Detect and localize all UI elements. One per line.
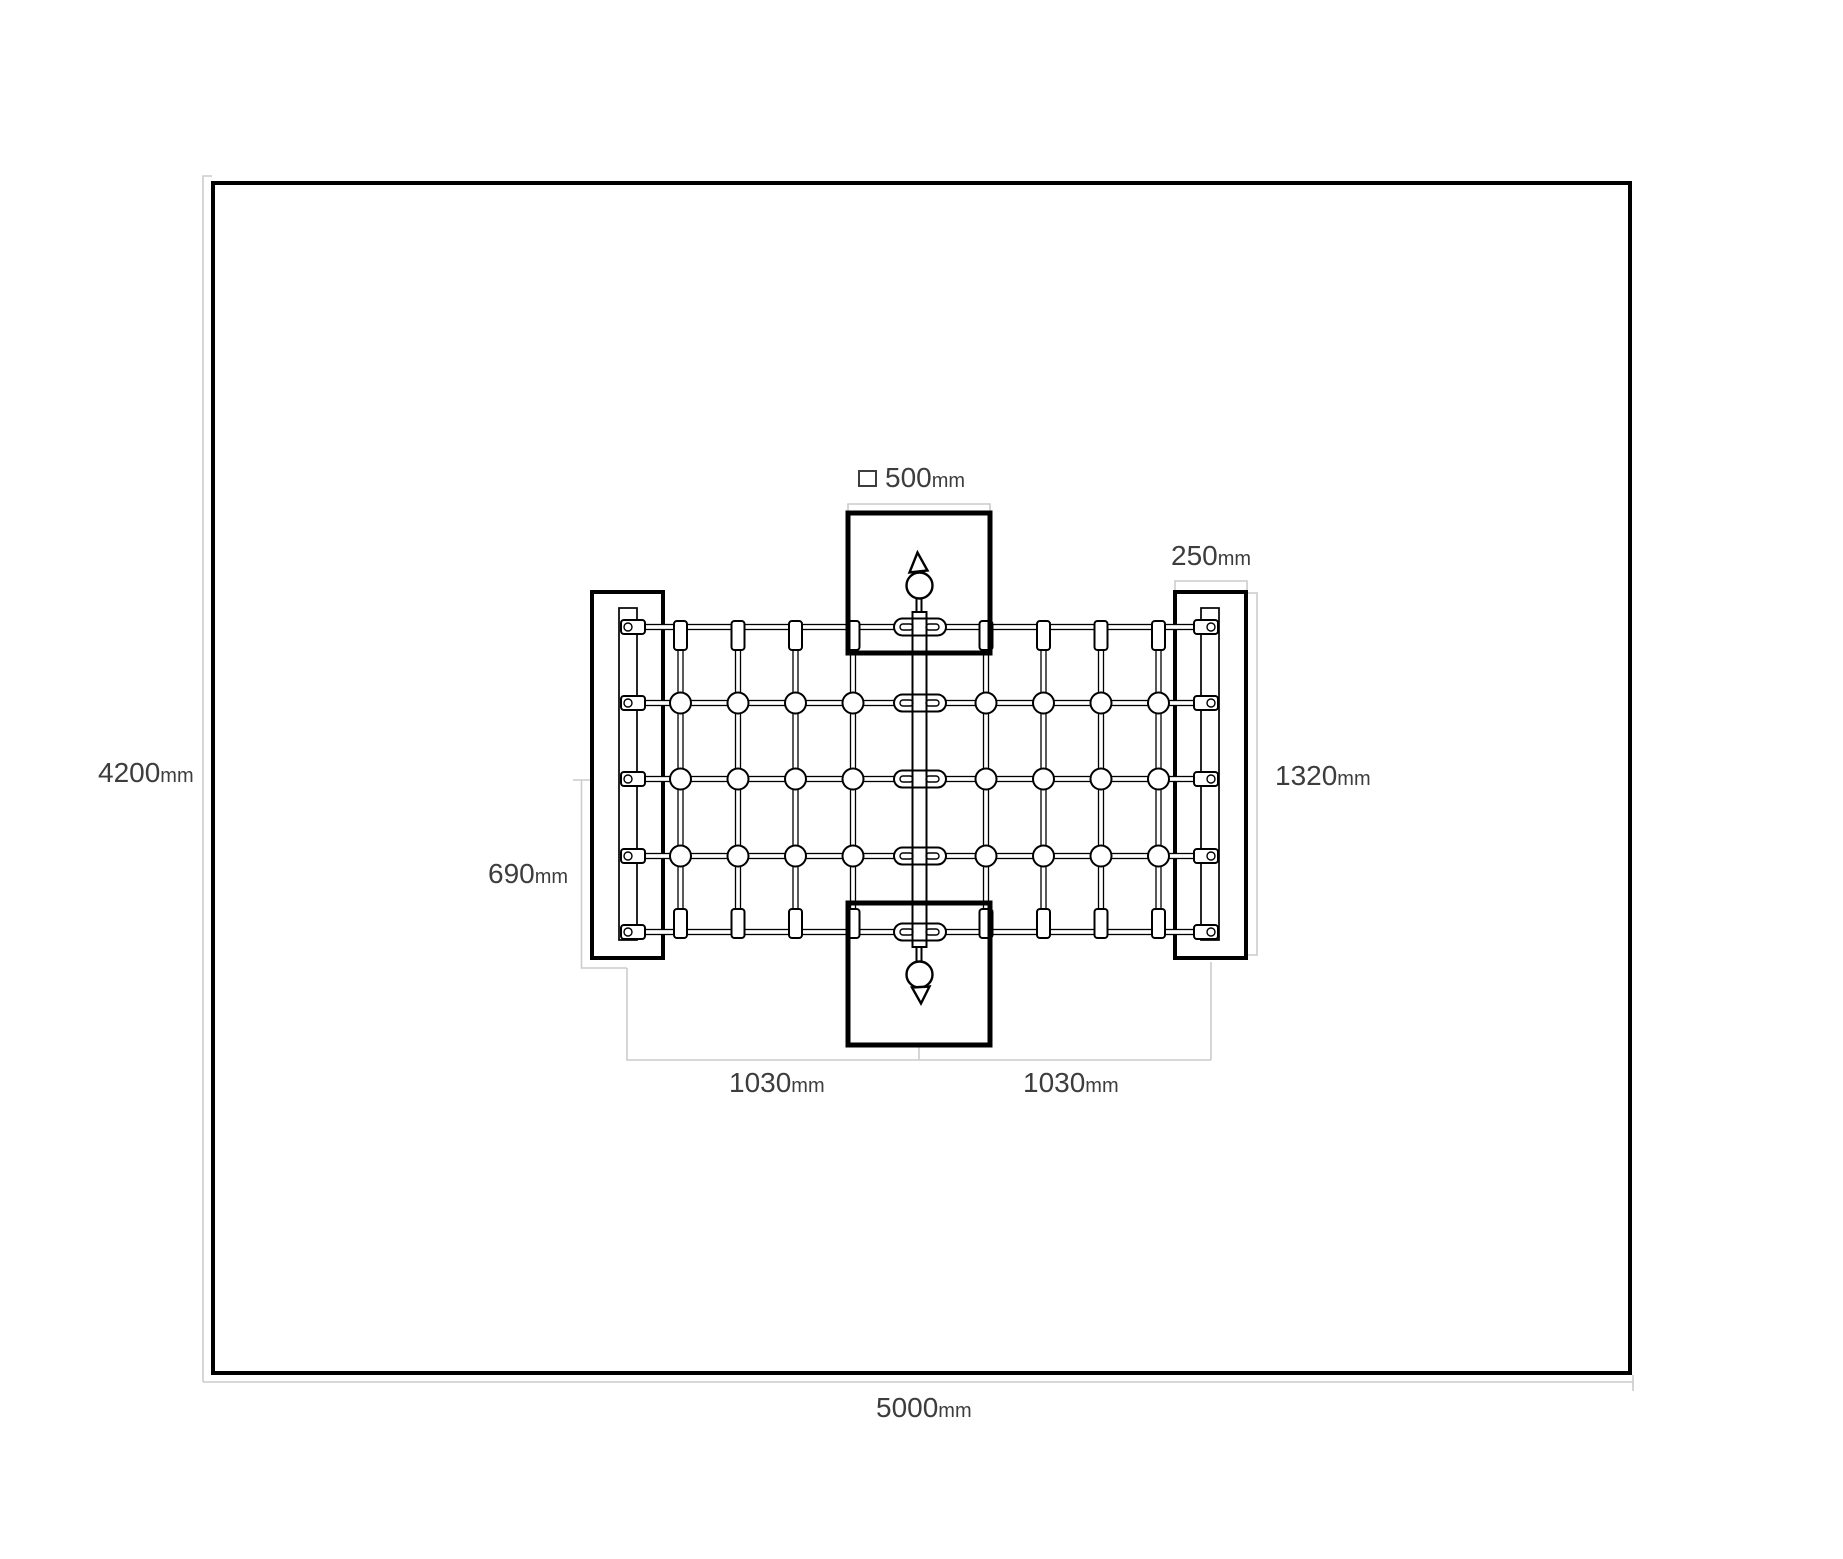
post-length-unit: mm [1337, 768, 1370, 790]
post-width-value: 250 [1171, 540, 1218, 571]
post-width-label: 250mm [1171, 542, 1251, 570]
rope-clamp-top [1152, 621, 1165, 650]
top-marker [907, 553, 933, 614]
rope-clamp-top [789, 621, 802, 650]
top-post-section-unit: mm [932, 470, 965, 492]
area-width-label: 5000mm [876, 1394, 972, 1422]
rope-cross-ball-connector [843, 769, 864, 790]
rope-cross-ball-connector [728, 769, 749, 790]
bottom-marker-stem [917, 946, 922, 962]
plan-drawing [0, 0, 1843, 1559]
right-rope-end-eye-icon [1207, 699, 1215, 707]
rope-clamp-top [732, 621, 745, 650]
left-rope-end-eye-icon [624, 928, 632, 936]
beam-turnbuckle-connector [894, 695, 946, 712]
bottom-marker-ball [907, 962, 933, 988]
bottom-marker [907, 946, 933, 1004]
half-span-right-unit: mm [1085, 1075, 1118, 1097]
rope-cross-ball-connector [1148, 693, 1169, 714]
area-width-value: 5000 [876, 1392, 938, 1423]
half-span-right-value: 1030 [1023, 1067, 1085, 1098]
top-marker-ball [907, 573, 933, 599]
net-offset-value: 690 [488, 858, 535, 889]
post-length-value: 1320 [1275, 760, 1337, 791]
rope-clamp-bottom [732, 909, 745, 938]
rope-cross-ball-connector [1033, 846, 1054, 867]
area-depth-value: 4200 [98, 757, 160, 788]
rope-cross-ball-connector [1148, 846, 1169, 867]
rope-cross-ball-connector [1091, 769, 1112, 790]
right-rope-end-eye-icon [1207, 623, 1215, 631]
left-rope-end-eye-icon [624, 623, 632, 631]
beam-turnbuckle-connector [894, 771, 946, 788]
rope-cross-ball-connector [728, 693, 749, 714]
rope-clamp-bottom [789, 909, 802, 938]
top-post-section-value: 500 [885, 462, 932, 493]
rope-clamp-bottom [1152, 909, 1165, 938]
rope-cross-ball-connector [1091, 846, 1112, 867]
bottom-marker-cone [912, 987, 930, 1004]
net-offset-label: 690mm [488, 860, 568, 888]
half-span-left-unit: mm [791, 1075, 824, 1097]
rope-cross-ball-connector [1033, 769, 1054, 790]
rope-clamp-bottom [674, 909, 687, 938]
rope-cross-ball-connector [785, 769, 806, 790]
drawing-page: 4200mm 5000mm 500mm 250mm 1320mm 690mm 1… [0, 0, 1843, 1559]
rope-clamp-bottom [1037, 909, 1050, 938]
area-depth-label: 4200mm [98, 759, 194, 787]
rope-cross-ball-connector [785, 693, 806, 714]
rope-clamp-top [1095, 621, 1108, 650]
half-span-left-value: 1030 [729, 1067, 791, 1098]
top-marker-stem [917, 598, 922, 613]
beam-turnbuckle-connector [894, 848, 946, 865]
rope-cross-ball-connector [976, 846, 997, 867]
rope-cross-ball-connector [728, 846, 749, 867]
rope-cross-ball-connector [1091, 693, 1112, 714]
rope-cross-ball-connector [843, 846, 864, 867]
right-rope-end-eye-icon [1207, 928, 1215, 936]
rope-clamp-bottom [1095, 909, 1108, 938]
right-rope-end-eye-icon [1207, 775, 1215, 783]
rope-cross-ball-connector [785, 846, 806, 867]
area-depth-unit: mm [160, 765, 193, 787]
beam-turnbuckle-connector [894, 924, 946, 941]
rope-cross-ball-connector [976, 693, 997, 714]
rope-cross-ball-connector [670, 693, 691, 714]
top-post-section-label: 500mm [858, 464, 965, 492]
half-span-left-label: 1030mm [729, 1069, 825, 1097]
post-length-label: 1320mm [1275, 762, 1371, 790]
rope-cross-ball-connector [670, 769, 691, 790]
rope-cross-ball-connector [976, 769, 997, 790]
net-offset-unit: mm [535, 866, 568, 888]
half-span-right-label: 1030mm [1023, 1069, 1119, 1097]
beam-turnbuckle-connector [894, 619, 946, 636]
rope-cross-ball-connector [843, 693, 864, 714]
rope-clamp-top [674, 621, 687, 650]
post-width-unit: mm [1218, 548, 1251, 570]
top-marker-cone [910, 553, 928, 573]
rope-cross-ball-connector [670, 846, 691, 867]
climbing-net [621, 612, 1218, 947]
left-rope-end-eye-icon [624, 699, 632, 707]
left-rope-end-eye-icon [624, 852, 632, 860]
rope-cross-ball-connector [1033, 693, 1054, 714]
area-width-unit: mm [938, 1400, 971, 1422]
rope-clamp-top [1037, 621, 1050, 650]
square-section-icon [858, 470, 877, 487]
rope-cross-ball-connector [1148, 769, 1169, 790]
right-rope-end-eye-icon [1207, 852, 1215, 860]
left-rope-end-eye-icon [624, 775, 632, 783]
